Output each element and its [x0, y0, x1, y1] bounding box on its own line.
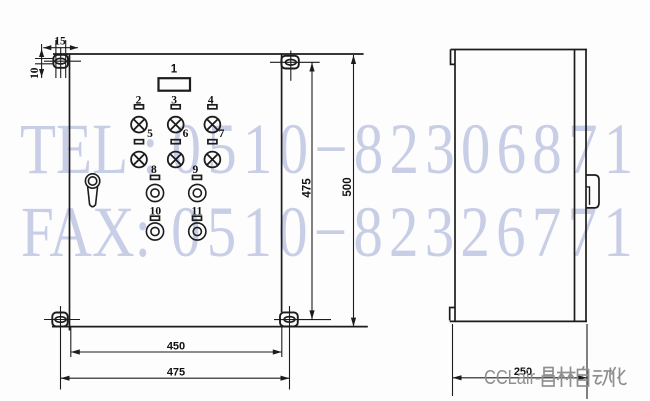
- svg-text:15: 15: [54, 36, 66, 48]
- svg-text:1: 1: [171, 64, 178, 76]
- svg-text:9: 9: [193, 164, 199, 176]
- svg-text:5: 5: [147, 128, 153, 140]
- svg-text:8: 8: [151, 164, 157, 176]
- svg-text:500: 500: [342, 177, 354, 196]
- svg-text:7: 7: [219, 128, 225, 140]
- svg-text:10: 10: [29, 67, 41, 79]
- svg-text:475: 475: [302, 178, 314, 198]
- svg-text:475: 475: [167, 367, 185, 379]
- svg-text:450: 450: [167, 341, 185, 353]
- svg-text:6: 6: [183, 128, 189, 140]
